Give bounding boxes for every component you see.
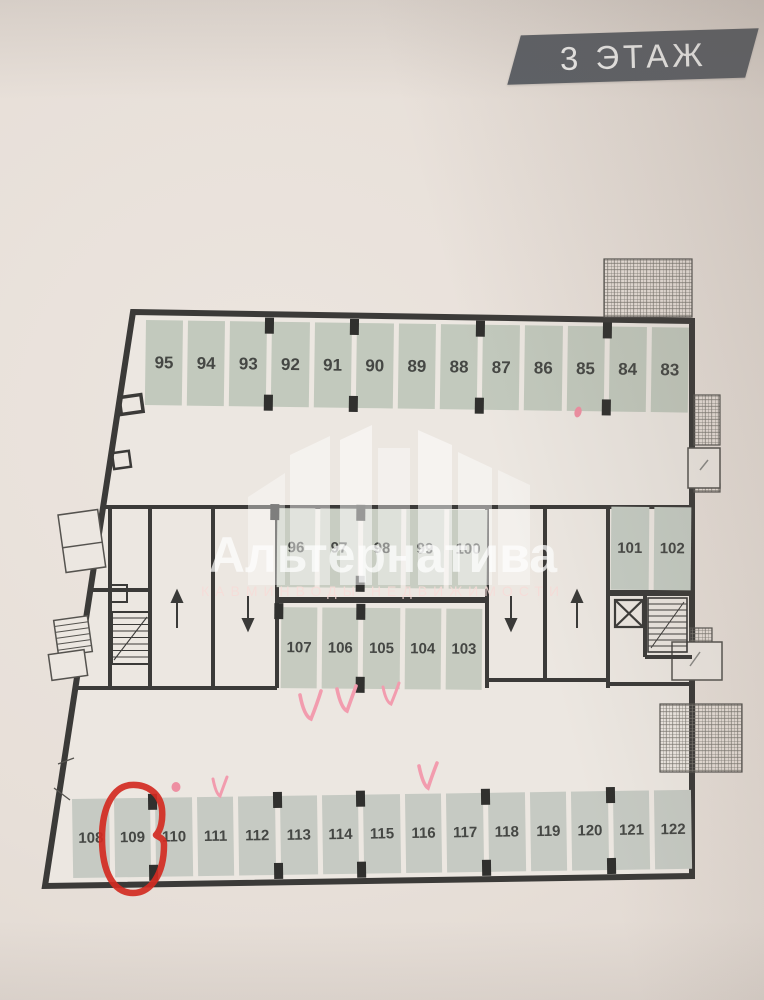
storage-unit: 100 [449,510,488,589]
storage-unit: 122 [654,790,692,870]
left-exterior-structures [48,510,105,800]
up-arrow-icon [572,591,582,628]
thick-block-walls [277,593,692,600]
storage-unit: 98 [363,509,402,588]
unit-row-middle-right: 101102 [611,507,692,591]
storage-unit: 88 [440,324,478,410]
storage-unit: 102 [653,507,691,590]
pink-dots [172,406,583,792]
storage-unit: 85 [566,326,604,412]
floor-badge-label: 3 ЭТАЖ [559,35,707,77]
storage-unit: 115 [363,794,401,874]
storage-unit: 113 [280,795,318,875]
storage-unit: 86 [524,325,562,411]
up-arrow-icon [172,591,182,628]
storage-unit: 109 [114,798,152,878]
floor-plan-photo: 3 ЭТАЖ [0,0,764,1000]
pen-ticks [690,460,708,666]
storage-unit: 83 [651,327,689,413]
storage-unit: 105 [363,608,400,689]
down-arrow-icon [506,596,516,630]
storage-unit: 119 [529,792,567,872]
unit-row-bottom: 1081091101111121131141151161171181191201… [72,790,692,878]
storage-unit: 120 [571,791,609,871]
storage-unit: 107 [281,607,318,688]
storage-unit: 114 [322,795,360,875]
storage-unit: 121 [613,790,651,870]
storage-unit: 90 [356,323,394,409]
slant-wall-openings [112,395,143,469]
unit-row-middle: 96979899100 [277,508,488,589]
storage-unit: 111 [197,797,235,877]
storage-unit: 104 [404,608,441,689]
elevator-icon [615,600,643,627]
storage-unit: 106 [322,607,359,688]
unit-row-top: 95949392919089888786858483 [145,320,689,413]
stairs-right-icon [648,598,687,652]
storage-unit: 94 [187,321,225,407]
storage-unit: 112 [238,796,276,876]
storage-unit: 101 [611,507,649,590]
storage-unit: 95 [145,320,183,406]
storage-unit: 110 [155,797,193,877]
storage-unit: 108 [72,798,110,878]
floor-badge: 3 ЭТАЖ [507,28,758,84]
storage-unit: 97 [320,508,359,587]
down-arrow-icon [243,596,253,630]
storage-unit: 91 [313,322,351,408]
storage-unit: 116 [405,794,443,874]
storage-unit: 87 [482,325,520,411]
storage-unit: 117 [446,793,484,873]
storage-unit: 103 [445,609,482,690]
storage-unit: 118 [488,792,526,872]
stairs-left-icon [110,585,150,664]
storage-unit: 93 [229,321,267,407]
storage-unit: 99 [406,509,445,588]
storage-unit: 89 [398,324,436,410]
unit-row-lower-middle: 107106105104103 [281,607,483,690]
storage-unit: 92 [271,322,309,408]
storage-unit: 84 [608,326,646,412]
storage-unit: 96 [277,508,316,587]
pink-checkmarks [213,683,437,796]
